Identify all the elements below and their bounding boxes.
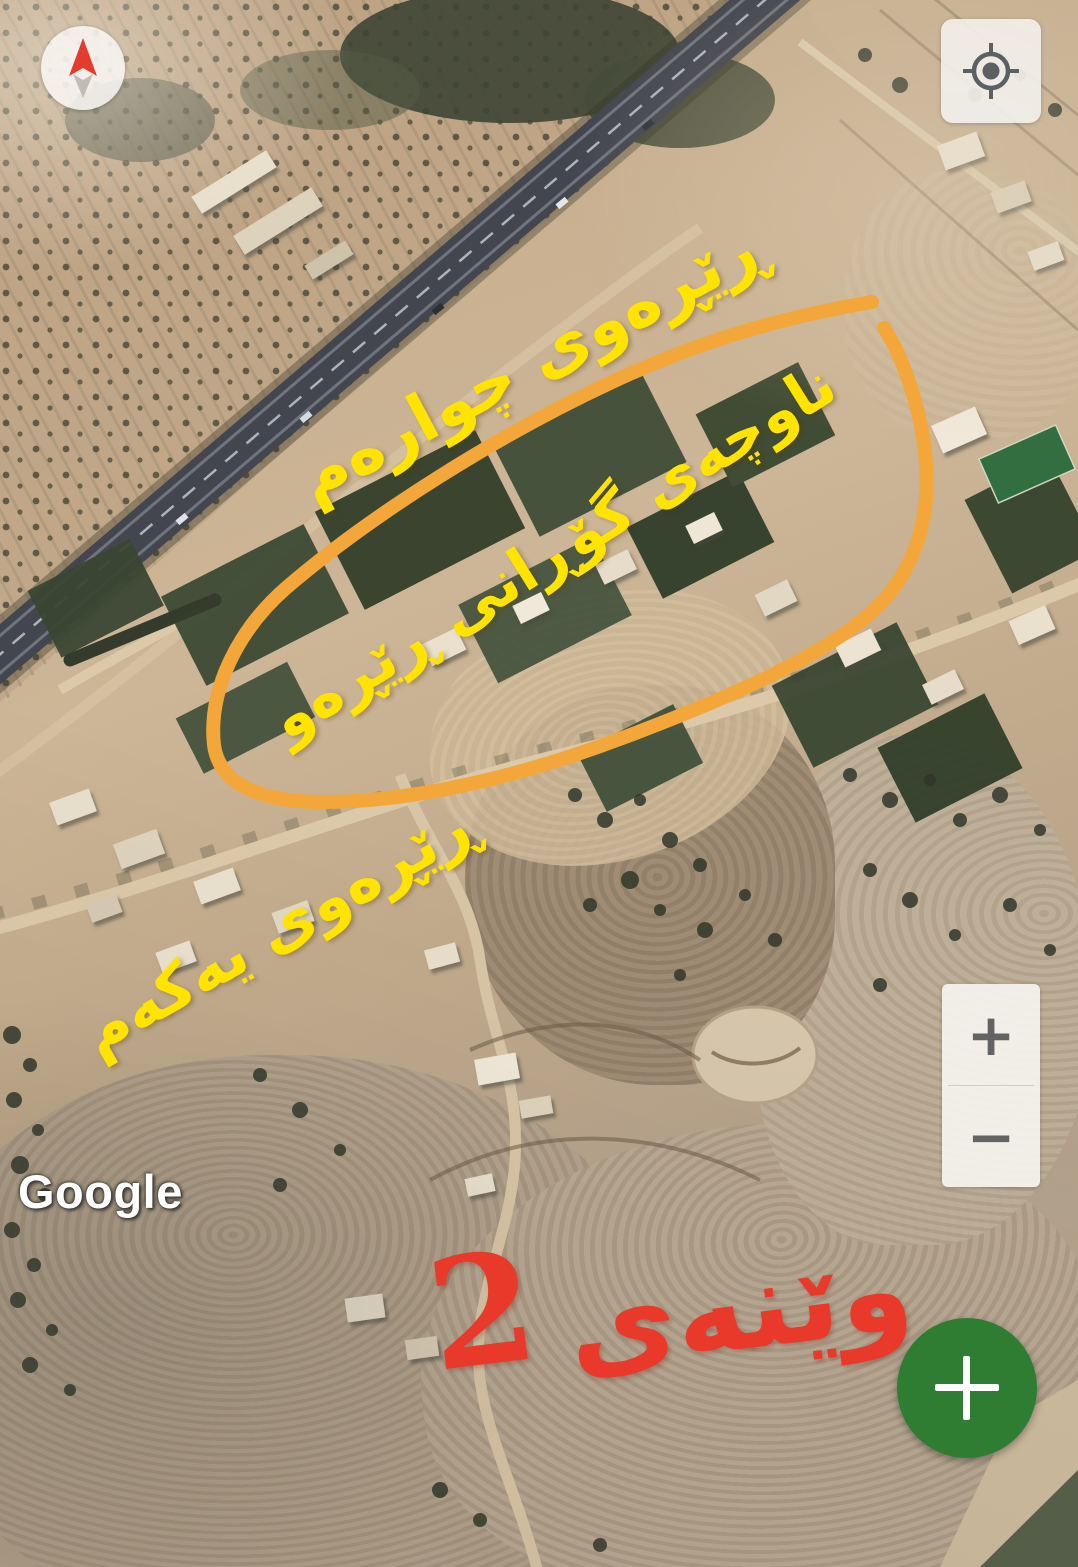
zoom-in-button[interactable]: + — [942, 984, 1040, 1085]
compass-button[interactable] — [41, 26, 125, 110]
compass-needle-icon — [41, 26, 125, 110]
figure-word: وێنەی — [561, 1228, 918, 1387]
zoom-control: + − — [942, 984, 1040, 1187]
my-location-button[interactable] — [941, 19, 1041, 123]
my-location-icon — [962, 42, 1020, 100]
plus-icon — [963, 1356, 970, 1420]
google-logo: Google — [18, 1164, 183, 1219]
add-button[interactable] — [897, 1318, 1037, 1458]
google-maps-satellite-view[interactable]: ڕێڕەوی چوارەم ناوچەی گۆڕانی ڕێڕەو ڕێڕەوی… — [0, 0, 1078, 1567]
zoom-out-button[interactable]: − — [942, 1086, 1040, 1187]
figure-number: 2 — [420, 1229, 544, 1393]
